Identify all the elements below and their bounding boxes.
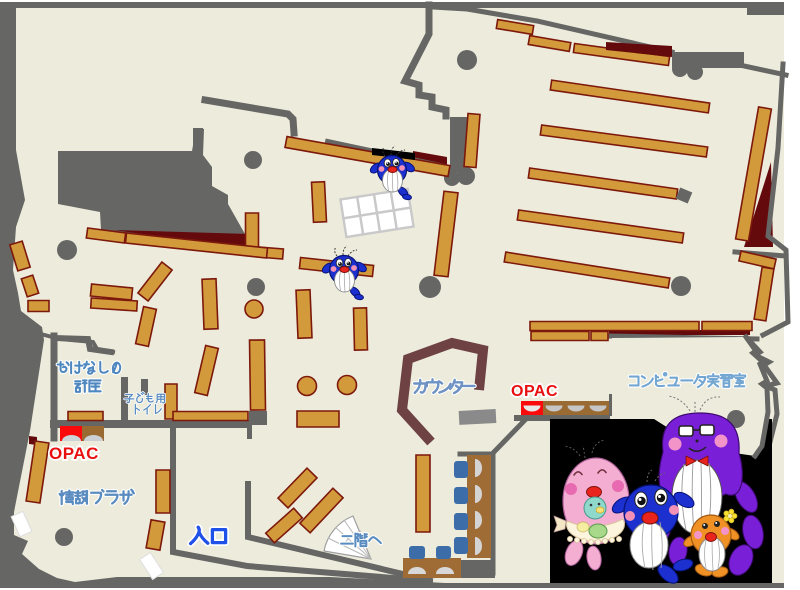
svg-text:OPAC: OPAC [49,444,99,463]
svg-text:OPAC: OPAC [511,383,558,400]
